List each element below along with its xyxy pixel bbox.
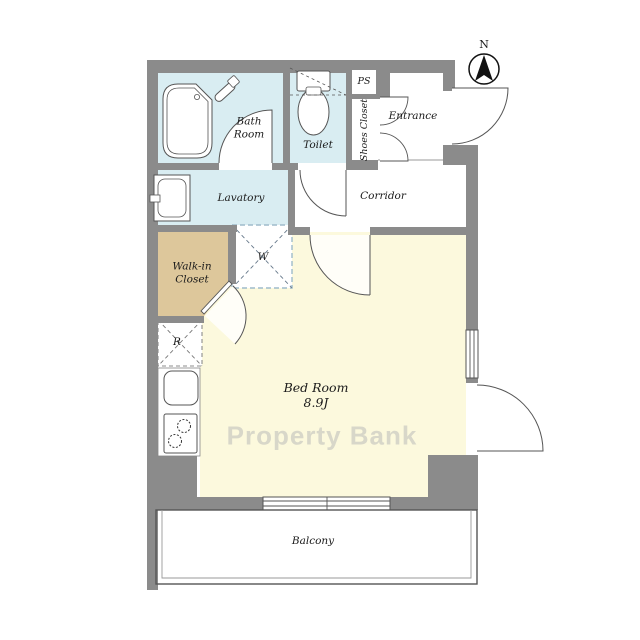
bedroom-label: Bed Room 8.9J	[284, 380, 349, 410]
toilet-label: Toilet	[303, 139, 333, 152]
north-arrow-icon	[469, 54, 499, 84]
window-right-icon	[466, 330, 478, 378]
refrigerator-label: R	[173, 336, 181, 349]
toilet-door-arc	[300, 170, 346, 216]
stove-icon	[164, 414, 197, 453]
vanity-sink-icon	[150, 175, 190, 221]
bedroom-size-label: 8.9J	[284, 395, 349, 410]
shoes-closet-label: Shoes Closet	[359, 99, 372, 161]
kitchen-counter	[158, 368, 200, 456]
washer-label: W	[258, 251, 269, 264]
corridor-label: Corridor	[360, 190, 406, 203]
bath-room-label: Bath Room	[234, 116, 265, 141]
window-balcony-icon	[263, 497, 390, 510]
ps-label: PS	[358, 76, 371, 89]
toilet-icon	[297, 71, 330, 135]
walkin-closet-label-line1: Walk-in	[172, 261, 211, 274]
compass-north-label: N	[479, 39, 489, 52]
shoes-closet-door-lower-arc	[380, 133, 408, 161]
lavatory-label: Lavatory	[218, 192, 265, 205]
kitchen-sink-icon	[164, 371, 198, 405]
bedroom-label-name: Bed Room	[284, 380, 349, 395]
watermark: Property Bank	[227, 421, 418, 452]
bedroom-exterior-door-arc	[477, 385, 543, 451]
walkin-closet-label: Walk-in Closet	[172, 261, 211, 286]
balcony-label: Balcony	[292, 535, 334, 548]
bath-room-label-line1: Bath	[234, 116, 265, 129]
walkin-closet-label-line2: Closet	[172, 273, 211, 286]
floor-plan: Bath Room Toilet PS Shoes Closet Entranc…	[0, 0, 640, 640]
bathtub-icon	[163, 84, 212, 158]
entrance-door-arc	[452, 88, 508, 144]
bath-room-label-line2: Room	[234, 128, 265, 141]
entrance-label: Entrance	[389, 110, 438, 123]
